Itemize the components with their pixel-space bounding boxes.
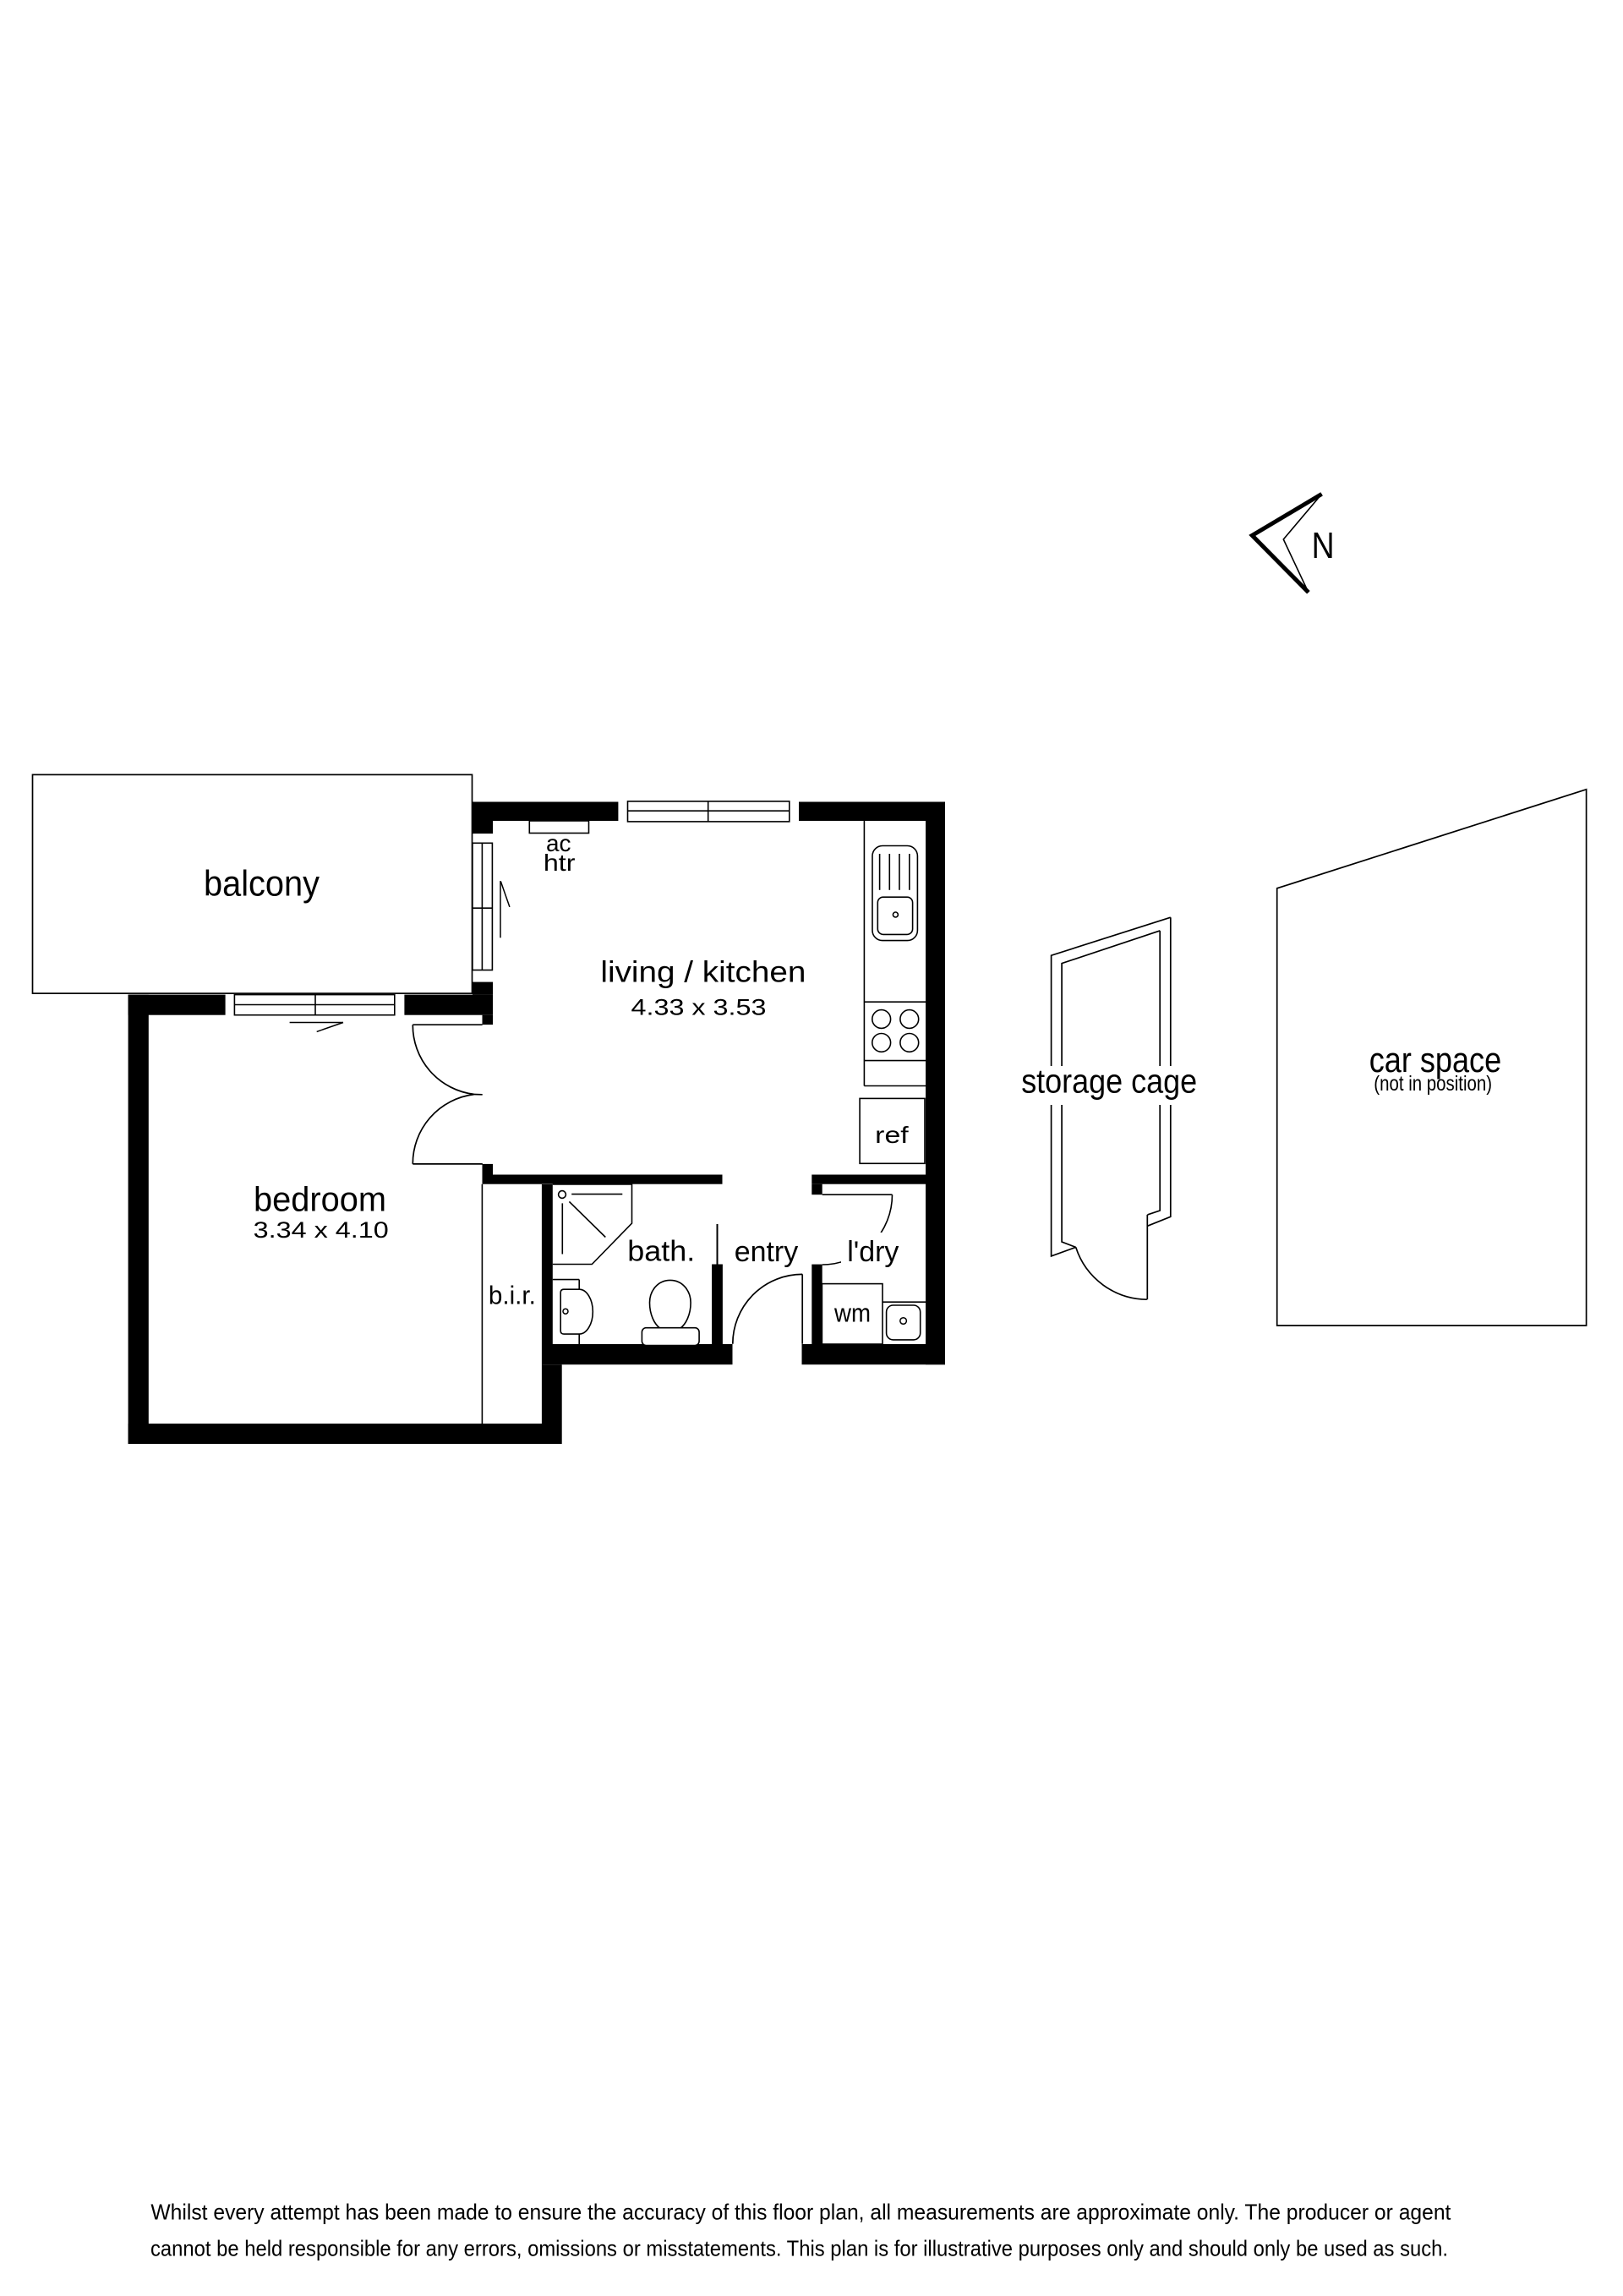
svg-text:cannot be held responsible for: cannot be held responsible for any error… xyxy=(150,2236,1448,2261)
svg-text:bath.: bath. xyxy=(627,1236,695,1268)
svg-text:l'dry: l'dry xyxy=(847,1236,899,1268)
svg-text:bedroom: bedroom xyxy=(254,1180,386,1219)
svg-text:(not in position): (not in position) xyxy=(1374,1072,1492,1096)
svg-text:htr: htr xyxy=(544,850,576,876)
svg-text:b.i.r.: b.i.r. xyxy=(489,1280,536,1309)
svg-text:wm: wm xyxy=(833,1298,871,1327)
svg-text:ref: ref xyxy=(875,1122,909,1148)
svg-text:3.34 x 4.10: 3.34 x 4.10 xyxy=(254,1217,389,1243)
svg-text:living / kitchen: living / kitchen xyxy=(600,956,806,989)
svg-text:balcony: balcony xyxy=(204,864,320,905)
svg-text:entry: entry xyxy=(735,1236,799,1268)
svg-text:storage cage: storage cage xyxy=(1021,1063,1197,1101)
svg-text:4.33 x 3.53: 4.33 x 3.53 xyxy=(631,995,767,1020)
svg-text:N: N xyxy=(1312,525,1335,566)
svg-text:Whilst every attempt has been: Whilst every attempt has been made to en… xyxy=(150,2200,1451,2225)
